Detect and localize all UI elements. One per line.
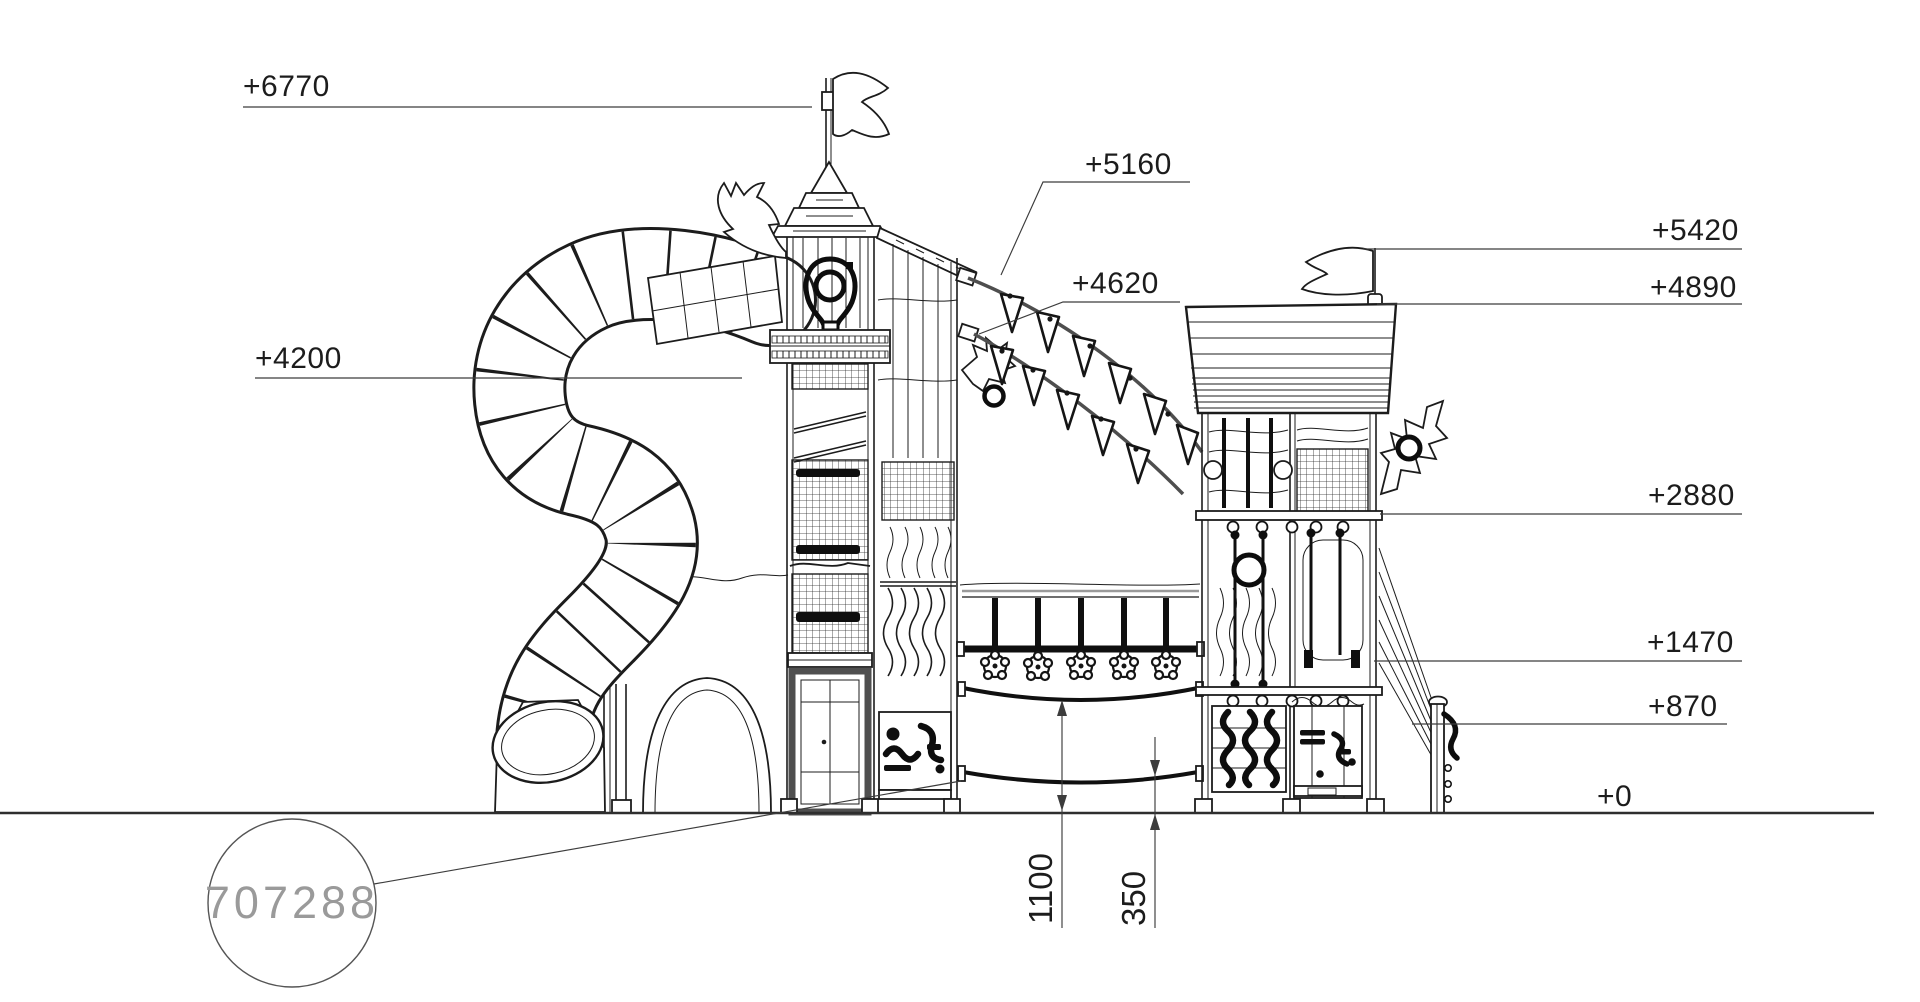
upper-balance-rope xyxy=(963,688,1198,700)
flag-banner xyxy=(833,73,889,137)
deck-band xyxy=(770,330,890,363)
play-house-panel xyxy=(1292,698,1364,799)
snake-panel xyxy=(1212,706,1286,792)
elevation-drawing-page: +6770 +4200 +5160 +4620 +5420 +4890 +288… xyxy=(0,0,1920,1002)
flower-handles xyxy=(981,651,1180,680)
elevation-label-4890: +4890 xyxy=(1650,271,1737,304)
elevation-label-5420: +5420 xyxy=(1652,214,1739,247)
dimension-350: 350 xyxy=(1115,737,1160,928)
rope-climber xyxy=(1217,531,1276,689)
annotations: +6770 +4200 +5160 +4620 +5420 +4890 +288… xyxy=(205,70,1742,987)
dragon-claw-right xyxy=(1381,401,1447,494)
main-tower-flag xyxy=(822,73,889,180)
pennant-flags xyxy=(991,294,1198,483)
activity-panel xyxy=(879,712,951,790)
steering-ring xyxy=(1234,555,1264,585)
hanging-bridge xyxy=(957,583,1204,782)
elevation-label-4620: +4620 xyxy=(1072,267,1159,300)
flag-banner xyxy=(1302,248,1373,295)
knob-row-upper xyxy=(1228,522,1349,533)
playground-elevation-drawing: +6770 +4200 +5160 +4620 +5420 +4890 +288… xyxy=(0,0,1920,1002)
climbing-ramp xyxy=(1379,548,1457,813)
elevation-label-4200: +4200 xyxy=(255,342,342,375)
tower-door xyxy=(792,671,868,812)
lower-balance-rope xyxy=(963,772,1198,783)
climbing-wall-panel xyxy=(1204,418,1292,508)
inner-slide-frame xyxy=(1303,529,1363,669)
knob-row-lower xyxy=(1228,696,1349,707)
climbing-net xyxy=(1297,449,1368,512)
elevation-label-870: +870 xyxy=(1648,690,1718,723)
elevation-label-2880: +2880 xyxy=(1648,479,1735,512)
elevation-label-1470: +1470 xyxy=(1647,626,1734,659)
elevation-label-5160: +5160 xyxy=(1085,148,1172,181)
pennant-garland xyxy=(968,278,1202,494)
right-tower xyxy=(1186,248,1447,813)
elevation-label-6770: +6770 xyxy=(243,70,330,103)
elevation-label-0: +0 xyxy=(1597,780,1632,813)
dim-text-350: 350 xyxy=(1115,871,1152,926)
crawl-arch-outer xyxy=(643,678,771,813)
stair-mesh-column xyxy=(790,364,870,653)
main-tower xyxy=(718,73,1015,813)
dim-text-1100: 1100 xyxy=(1022,853,1059,924)
part-number: 707288 xyxy=(205,877,379,928)
right-tower-roof xyxy=(1186,304,1396,413)
